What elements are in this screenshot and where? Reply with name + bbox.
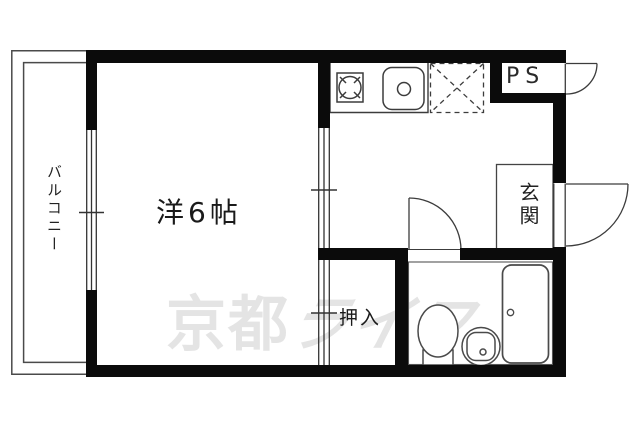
ps-door-icon: [565, 64, 597, 95]
toilet-door-icon: [408, 198, 461, 250]
wall-ps-bottom: [490, 93, 566, 103]
wall-partition-top: [318, 63, 330, 128]
floorplan: 京都ライフ: [0, 0, 640, 427]
wall-right-lower: [553, 247, 566, 377]
wash-basin-icon: [462, 328, 500, 366]
bathtub-icon: [503, 265, 549, 363]
wall-closet-divider: [395, 248, 408, 377]
pipe-space-label: PS: [506, 64, 545, 89]
entrance-door-icon: [554, 184, 628, 248]
closet-label: 押入: [339, 303, 381, 330]
entrance-label: 玄関: [514, 182, 543, 228]
wall-right-upper: [553, 103, 566, 183]
toilet-icon: [418, 305, 458, 365]
kitchen-sink-icon: [383, 68, 424, 110]
room-label: 洋6帖: [156, 191, 242, 231]
balcony-window-icon: [79, 130, 104, 290]
kitchen-counter: [330, 63, 428, 113]
wall-left-lower: [86, 290, 97, 377]
partition-window-upper-icon: [311, 128, 337, 248]
wall-hall-right: [460, 248, 566, 260]
stove-icon: [337, 73, 363, 102]
balcony-label: バルコニー: [44, 164, 65, 254]
wall-left-upper: [86, 50, 97, 130]
partition-window-lower-icon: [311, 260, 337, 365]
wall-bottom: [86, 365, 566, 377]
refrigerator-space-icon: [431, 64, 484, 113]
